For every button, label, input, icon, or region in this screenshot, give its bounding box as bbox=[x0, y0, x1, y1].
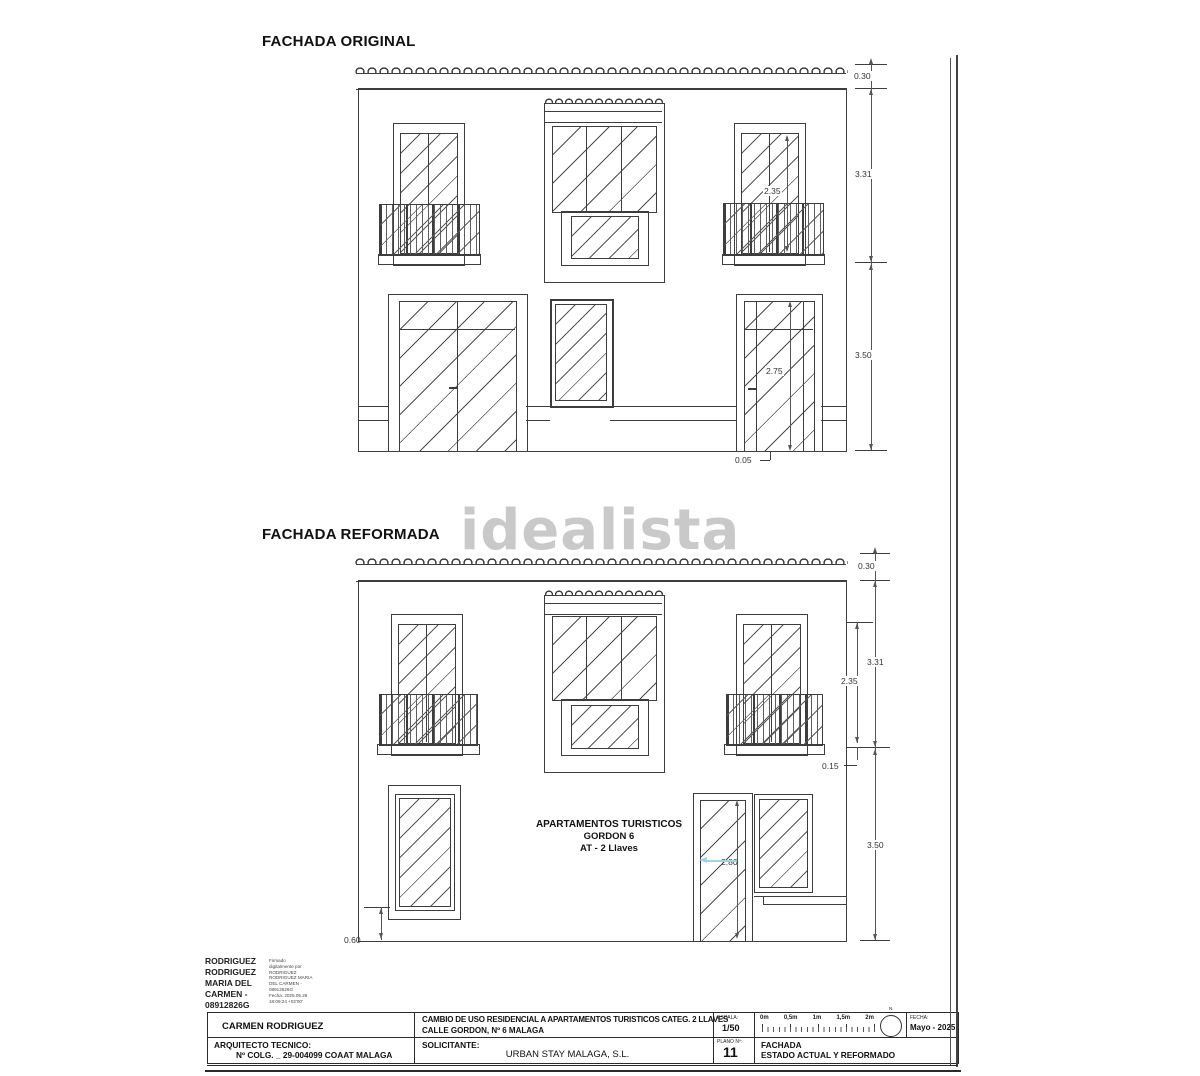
signature-name-line: RODRIGUEZ bbox=[205, 967, 265, 978]
awning-band-line bbox=[545, 111, 662, 112]
leader-line bbox=[760, 460, 770, 461]
dim-label: 3.31 bbox=[854, 169, 873, 179]
facade-original: 2.35 2.75 0.05 bbox=[352, 62, 892, 472]
dim-label: 3.31 bbox=[866, 657, 885, 667]
balcony-railing bbox=[726, 694, 823, 746]
date-label: FECHA: bbox=[910, 1015, 928, 1021]
drawing-sheet: idealista FACHADA ORIGINAL FACHADA REFOR… bbox=[0, 0, 1200, 1076]
mirador-window bbox=[552, 616, 657, 701]
building-outline: 2.35 2.75 bbox=[358, 88, 847, 452]
project-title-line2: CALLE GORDON, Nº 6 MALAGA bbox=[422, 1026, 544, 1035]
arrowhead bbox=[735, 800, 739, 806]
scalebar-label: 0,5m bbox=[784, 1015, 798, 1021]
title-block: CARMEN RODRIGUEZ CAMBIO DE USO RESIDENCI… bbox=[207, 1012, 959, 1064]
scalebar-label: 0m bbox=[760, 1015, 769, 1021]
extension-line bbox=[860, 940, 890, 941]
signature-name-line: CARMEN - bbox=[205, 989, 265, 1000]
signature-name-line: RODRIGUEZ bbox=[205, 956, 265, 967]
balcony-slab bbox=[377, 744, 480, 755]
new-window-glass bbox=[759, 799, 808, 888]
dim-line bbox=[857, 747, 858, 760]
signature-name: RODRIGUEZ RODRIGUEZ MARIA DEL CARMEN - 0… bbox=[205, 956, 265, 1014]
arrowhead bbox=[788, 445, 792, 451]
arrowhead bbox=[873, 749, 877, 755]
apartment-label-line3: AT - 2 Llaves bbox=[504, 843, 714, 855]
author-name: CARMEN RODRIGUEZ bbox=[222, 1021, 323, 1032]
plinth-band bbox=[359, 406, 388, 421]
dim-label: 2.80 bbox=[721, 857, 738, 867]
apartment-label: APARTAMENTOS TURISTICOS GORDON 6 AT - 2 … bbox=[504, 819, 714, 855]
arrowhead bbox=[855, 623, 859, 629]
plinth-band bbox=[526, 406, 550, 421]
plinth-band bbox=[610, 406, 736, 421]
arrowhead bbox=[379, 908, 383, 914]
balcony-railing bbox=[723, 203, 824, 256]
dim-label: 2.35 bbox=[763, 186, 782, 196]
dim-label: 2.35 bbox=[840, 676, 859, 686]
arrowhead bbox=[873, 547, 877, 553]
mullion-line bbox=[621, 126, 622, 211]
roof-scallop-trim bbox=[354, 62, 848, 73]
awning-scallop bbox=[544, 94, 663, 103]
north-symbol bbox=[880, 1015, 902, 1037]
dim-label: 0.30 bbox=[857, 561, 876, 571]
sheet-border-bottom-inner bbox=[207, 1065, 958, 1066]
mullion-line bbox=[586, 126, 587, 211]
balcony-railing bbox=[379, 204, 480, 256]
scale-value: 1/50 bbox=[722, 1023, 740, 1033]
side-door bbox=[744, 301, 815, 452]
balcony-slab bbox=[724, 744, 825, 755]
arrowhead bbox=[869, 264, 873, 270]
signature-detail-line: Fecha: 2025.05.29 bbox=[269, 993, 312, 999]
blue-arrow bbox=[705, 860, 737, 862]
door-leaf-split-line bbox=[457, 301, 458, 451]
scale-label: ESCALA: bbox=[717, 1015, 738, 1021]
applicant-value: URBAN STAY MALAGA, S.L. bbox=[422, 1049, 713, 1060]
leader-line bbox=[770, 452, 771, 460]
extension-line bbox=[364, 907, 390, 908]
dim-label: 0.05 bbox=[735, 455, 752, 465]
dim-label: 0.15 bbox=[822, 761, 839, 771]
scalebar-labels: 0m 0,5m 1m 1,5m 2m bbox=[760, 1015, 874, 1021]
step-line bbox=[763, 896, 764, 904]
digital-signature-block: RODRIGUEZ RODRIGUEZ MARIA DEL CARMEN - 0… bbox=[205, 956, 335, 1014]
titleblock-row-divider bbox=[208, 1037, 958, 1038]
mirador-lower-window bbox=[571, 705, 639, 749]
dim-line bbox=[790, 305, 791, 447]
door-handle bbox=[449, 387, 458, 389]
extension-line bbox=[847, 747, 890, 748]
arrowhead bbox=[855, 737, 859, 743]
scalebar-minor-ticks bbox=[762, 1027, 875, 1032]
blue-arrowhead bbox=[699, 857, 707, 863]
mullion-line bbox=[621, 616, 622, 699]
entrance-door bbox=[399, 301, 517, 452]
awning-scallop bbox=[544, 586, 663, 595]
role-label: ARQUITECTO TECNICO: bbox=[214, 1040, 311, 1050]
dim-label: 0.30 bbox=[853, 71, 872, 81]
sheet-border-right-inner bbox=[950, 58, 951, 1065]
arrowhead bbox=[873, 581, 877, 587]
roof-scallop-trim bbox=[354, 553, 848, 564]
balcony-slab bbox=[722, 254, 825, 265]
plan-number-value: 11 bbox=[723, 1044, 738, 1060]
balcony-railing bbox=[379, 694, 478, 746]
sheet-border-bottom-outer bbox=[205, 1070, 961, 1072]
new-door bbox=[700, 800, 746, 942]
extension-line bbox=[847, 622, 873, 623]
dim-line bbox=[737, 804, 738, 935]
signature-details: Firmado digitalmente por RODRIGUEZ RODRI… bbox=[269, 956, 312, 1014]
sheet-title-line2: ESTADO ACTUAL Y REFORMADO bbox=[761, 1050, 895, 1060]
awning-band-line bbox=[545, 614, 662, 615]
dim-label: 3.50 bbox=[854, 350, 873, 360]
arrowhead bbox=[788, 301, 792, 307]
mirador-window bbox=[552, 126, 657, 213]
door-stile-line bbox=[803, 301, 804, 451]
signature-name-line: MARIA DEL bbox=[205, 978, 265, 989]
sheet-border-right-outer bbox=[956, 55, 958, 1067]
facade-reformed: APARTAMENTOS TURISTICOS GORDON 6 AT - 2 … bbox=[352, 545, 892, 975]
scalebar-label: 2m bbox=[865, 1015, 874, 1021]
arrowhead bbox=[869, 89, 873, 95]
mullion-line bbox=[586, 616, 587, 699]
door-handle bbox=[748, 388, 756, 390]
arrowhead bbox=[735, 933, 739, 939]
door-stile-line bbox=[756, 301, 757, 451]
awning-band-line bbox=[545, 122, 662, 123]
arrowhead bbox=[379, 933, 383, 939]
scalebar-label: 1,5m bbox=[836, 1015, 850, 1021]
building-outline: APARTAMENTOS TURISTICOS GORDON 6 AT - 2 … bbox=[358, 580, 847, 942]
arrowhead bbox=[785, 246, 789, 252]
signature-detail-line: 18:09:24 +02'00' bbox=[269, 999, 312, 1005]
mirador-lower-window bbox=[571, 216, 639, 259]
awning-band-line bbox=[545, 603, 662, 604]
plinth-band bbox=[821, 406, 846, 421]
apartment-label-line1: APARTAMENTOS TURISTICOS bbox=[504, 819, 714, 831]
facade-original-title: FACHADA ORIGINAL bbox=[262, 33, 415, 50]
extension-line bbox=[855, 450, 887, 451]
leader-line bbox=[844, 765, 857, 766]
leader-line bbox=[366, 941, 376, 942]
signature-name-line: 08912826G bbox=[205, 1000, 265, 1011]
step-line bbox=[763, 904, 846, 905]
titleblock-col-divider bbox=[414, 1013, 415, 1063]
titleblock-col-divider bbox=[754, 1013, 755, 1063]
arrowhead bbox=[869, 58, 873, 64]
ground-window-glass bbox=[555, 304, 607, 401]
dim-label: 3.50 bbox=[866, 840, 885, 850]
window-glass bbox=[399, 798, 451, 907]
scalebar-label: 1m bbox=[813, 1015, 822, 1021]
arrowhead bbox=[785, 135, 789, 141]
dim-label: 2.75 bbox=[765, 366, 784, 376]
date-value: Mayo - 2025 bbox=[910, 1023, 955, 1032]
facade-reformed-title: FACHADA REFORMADA bbox=[262, 526, 440, 543]
transom-line bbox=[744, 329, 813, 330]
apartment-label-line2: GORDON 6 bbox=[504, 831, 714, 843]
north-label: N. bbox=[889, 1006, 894, 1011]
sheet-title-line1: FACHADA bbox=[761, 1040, 802, 1050]
step-line bbox=[754, 896, 846, 897]
titleblock-col-divider bbox=[906, 1013, 907, 1037]
balcony-slab bbox=[378, 254, 481, 265]
dim-label: 0.60 bbox=[344, 935, 361, 945]
project-title-line1: CAMBIO DE USO RESIDENCIAL A APARTAMENTOS… bbox=[422, 1015, 728, 1024]
role-value: Nº COLG. _ 29-004099 COAAT MALAGA bbox=[236, 1050, 392, 1060]
dim-line bbox=[787, 137, 788, 250]
